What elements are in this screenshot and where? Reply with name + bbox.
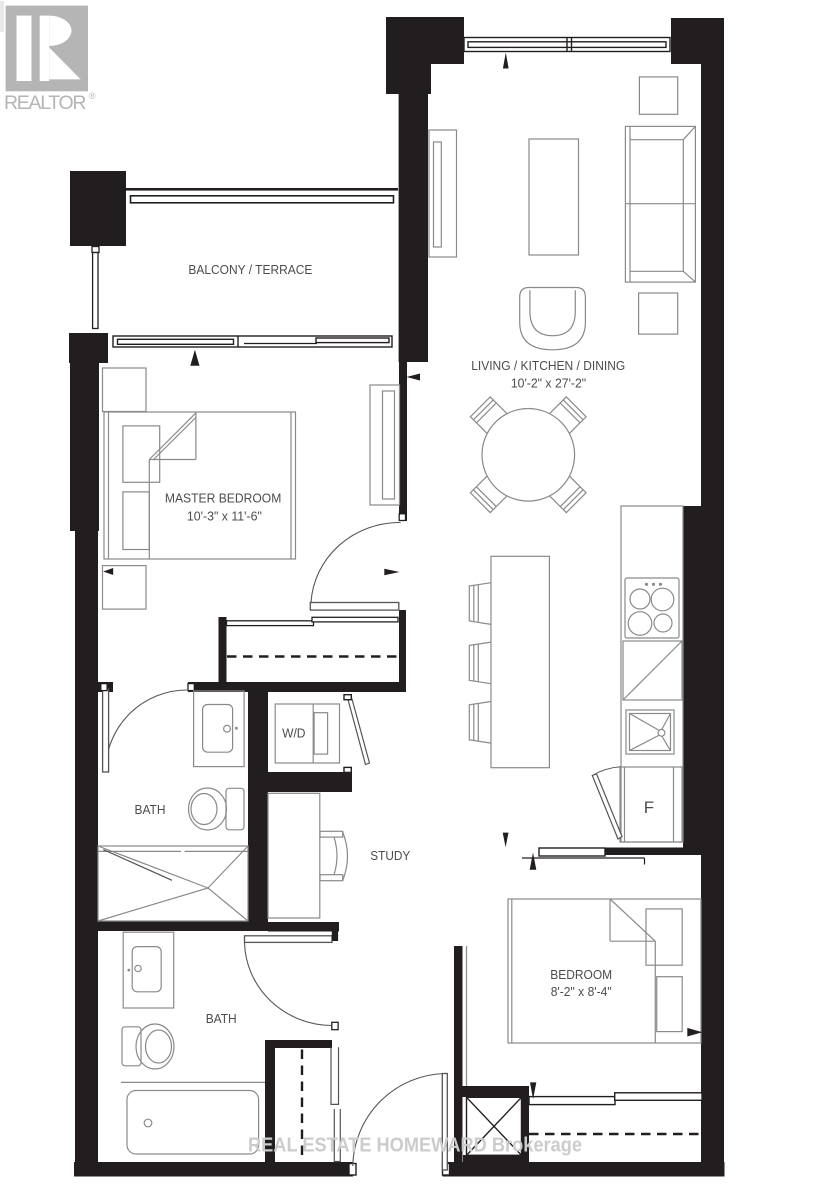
svg-text:®: ® — [89, 91, 96, 101]
svg-text:LIVING / KITCHEN / DINING: LIVING / KITCHEN / DINING — [471, 358, 625, 373]
svg-text:REALTOR: REALTOR — [4, 92, 88, 114]
svg-text:F: F — [644, 798, 654, 817]
svg-text:REAL ESTATE HOMEWARD Brokerage: REAL ESTATE HOMEWARD Brokerage — [248, 1135, 582, 1157]
svg-text:10'-3" x 11'-6": 10'-3" x 11'-6" — [187, 508, 262, 523]
svg-text:BALCONY / TERRACE: BALCONY / TERRACE — [188, 262, 312, 277]
svg-text:8'-2" x 8'-4": 8'-2" x 8'-4" — [551, 984, 612, 999]
svg-text:W/D: W/D — [282, 726, 305, 741]
svg-text:BATH: BATH — [206, 1011, 237, 1026]
svg-text:STUDY: STUDY — [370, 848, 410, 863]
svg-text:10'-2" x 27'-2": 10'-2" x 27'-2" — [511, 375, 586, 390]
svg-text:MASTER BEDROOM: MASTER BEDROOM — [165, 491, 281, 506]
svg-text:BEDROOM: BEDROOM — [550, 967, 612, 982]
svg-text:BATH: BATH — [135, 802, 166, 817]
